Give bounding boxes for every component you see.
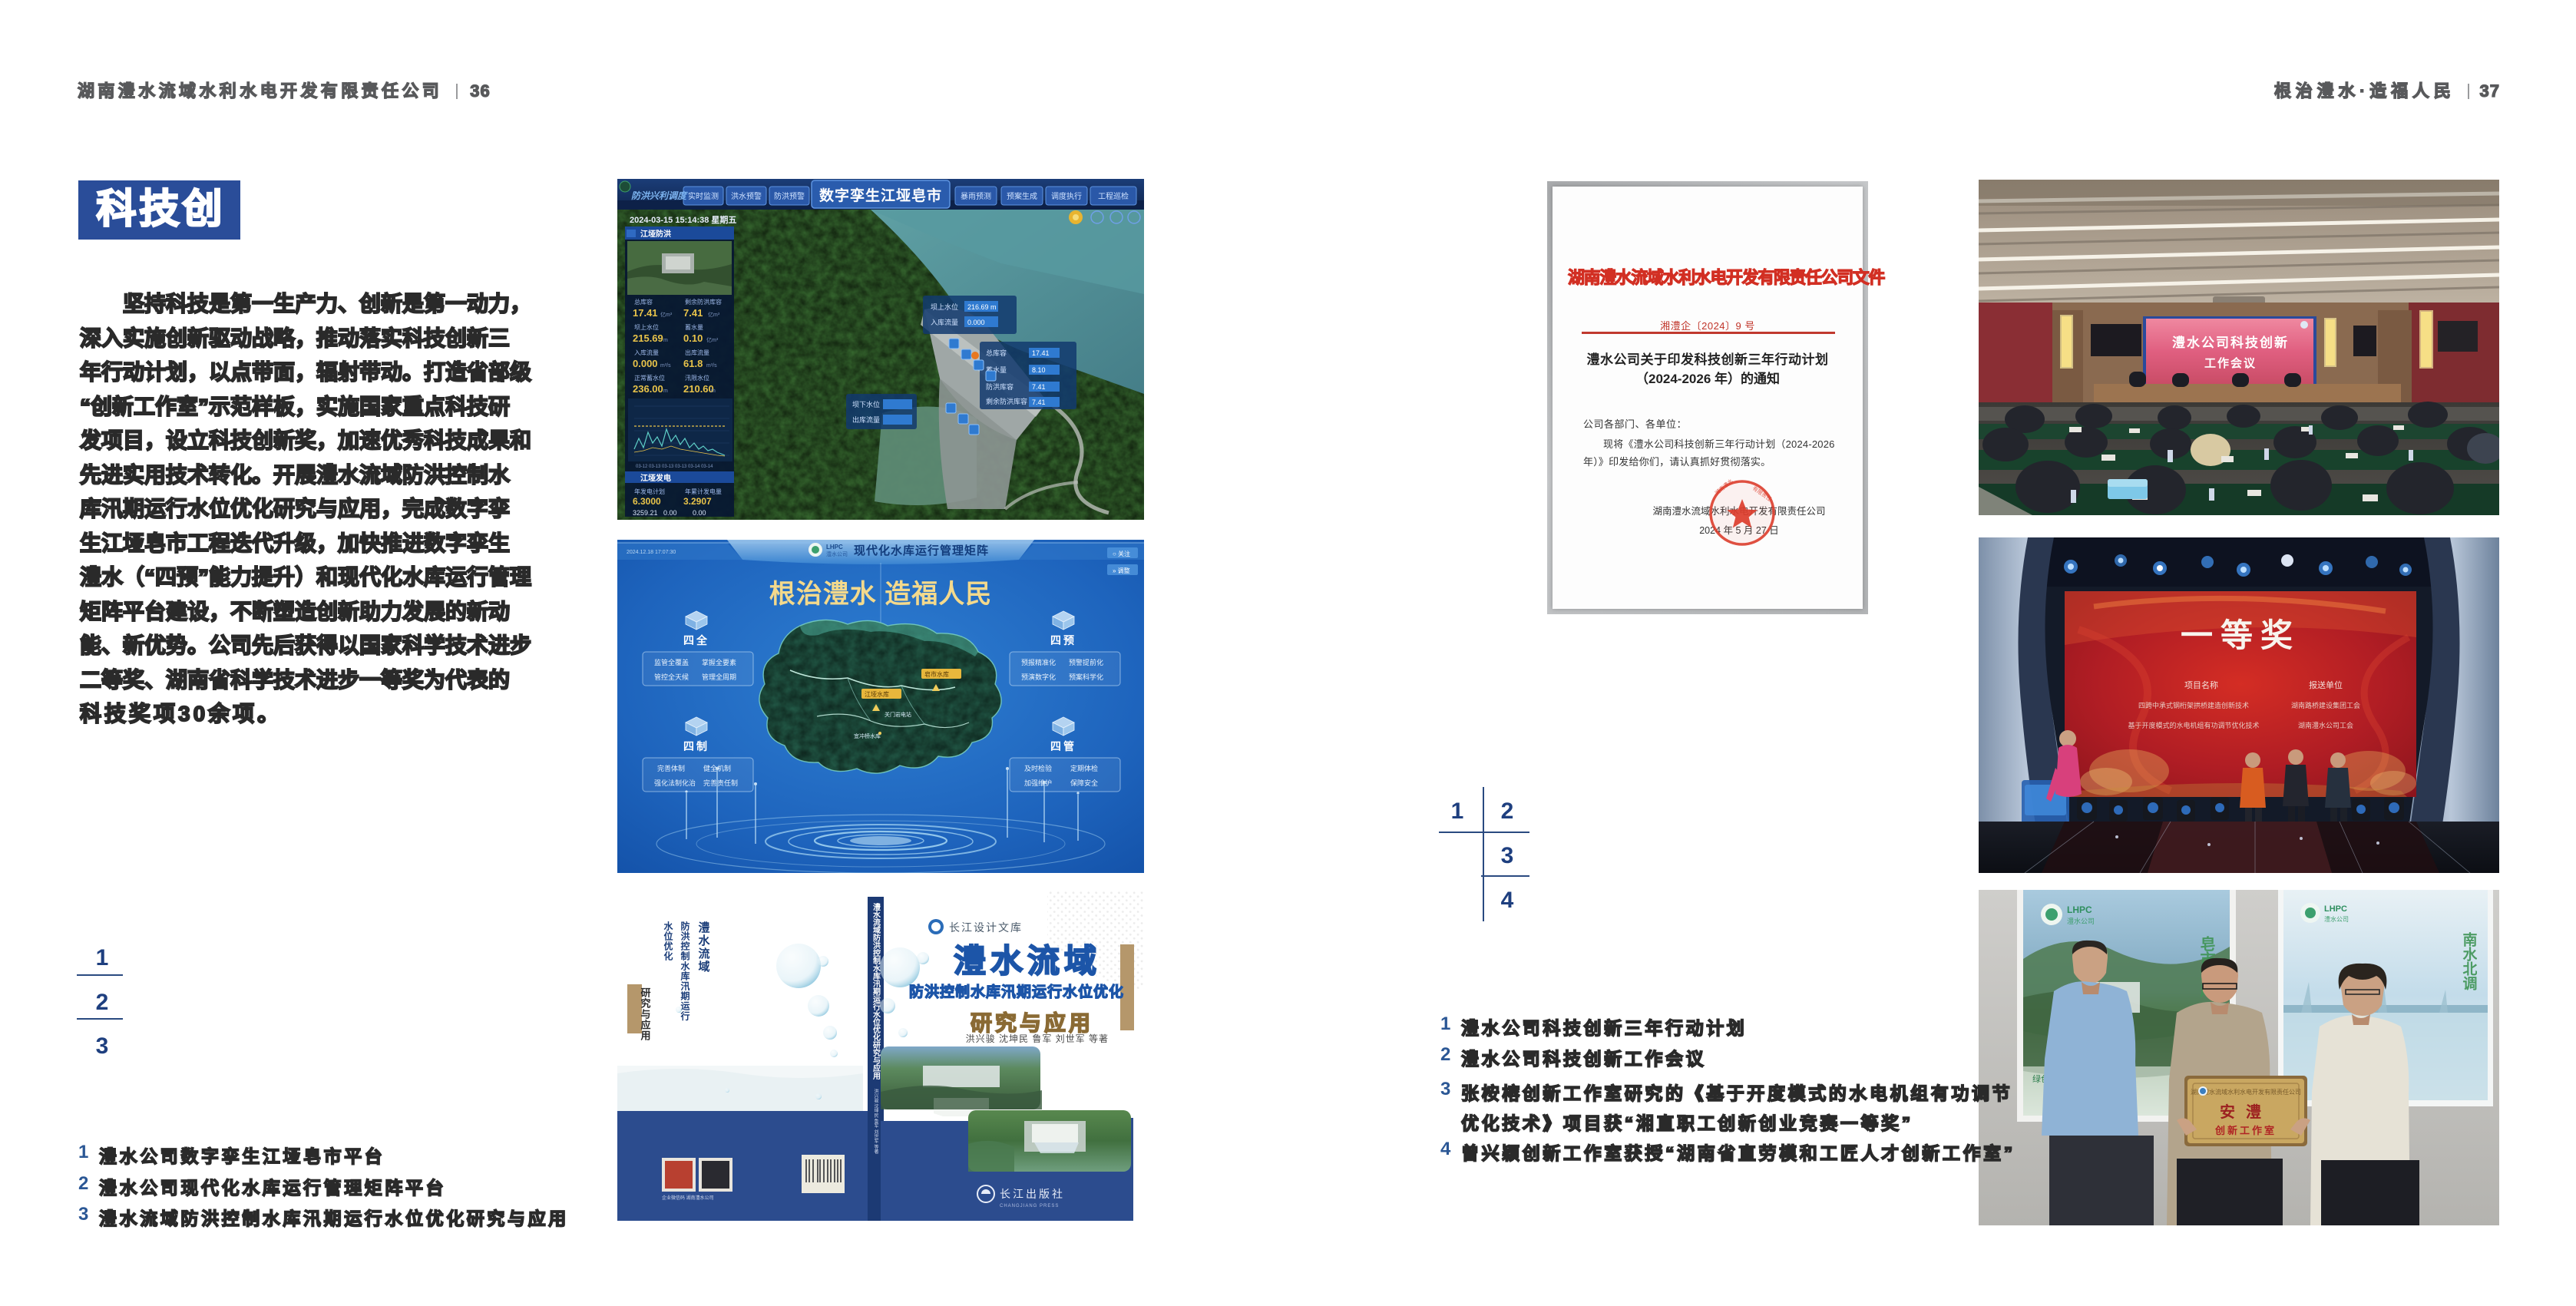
svg-text:管理全周期: 管理全周期 [702, 673, 736, 681]
svg-text:一等奖: 一等奖 [2181, 617, 2300, 653]
svg-text:水位优化: 水位优化 [663, 921, 673, 961]
svg-text:3.2907: 3.2907 [683, 496, 712, 507]
svg-text:澧水公司科技创新: 澧水公司科技创新 [2172, 335, 2289, 350]
svg-text:研究与应用: 研究与应用 [971, 1010, 1093, 1035]
svg-text:长江设计文库: 长江设计文库 [949, 921, 1023, 934]
svg-text:剩余防洪库容: 剩余防洪库容 [986, 397, 1027, 405]
svg-text:企业微信码 湖南澧水公司: 企业微信码 湖南澧水公司 [662, 1195, 714, 1201]
svg-text:0.000: 0.000 [633, 358, 658, 369]
svg-text:防洪控制水库汛期运行: 防洪控制水库汛期运行 [680, 921, 690, 1021]
svg-text:澧水公司: 澧水公司 [826, 551, 848, 557]
svg-text:汛限水位: 汛限水位 [685, 374, 709, 382]
svg-text:3259.21: 3259.21 [633, 509, 658, 517]
svg-text:亿m³: 亿m³ [708, 311, 720, 318]
svg-text:澧水流域: 澧水流域 [697, 921, 710, 974]
svg-text:216.69 m: 216.69 m [967, 303, 997, 311]
svg-text:0.00: 0.00 [663, 509, 677, 517]
svg-text:四预: 四预 [1050, 634, 1076, 646]
svg-text:入库流量: 入库流量 [931, 318, 958, 326]
svg-text:监管全覆盖: 监管全覆盖 [654, 658, 689, 666]
svg-text:0.10: 0.10 [683, 332, 703, 344]
svg-text:四管: 四管 [1050, 740, 1076, 752]
svg-text:LHPC: LHPC [2067, 904, 2092, 915]
svg-text:坝下水位: 坝下水位 [852, 400, 880, 408]
svg-text:工作会议: 工作会议 [2204, 356, 2257, 370]
svg-text:预演数字化: 预演数字化 [1021, 673, 1056, 681]
svg-text:澧水公司: 澧水公司 [2324, 915, 2349, 923]
svg-text:南水北调: 南水北调 [2461, 932, 2478, 990]
svg-text:定期体检: 定期体检 [1070, 764, 1098, 772]
svg-text:236.00: 236.00 [633, 383, 663, 395]
svg-text:四制: 四制 [683, 740, 709, 752]
svg-text:7.41: 7.41 [683, 307, 703, 319]
svg-text:皂市水库: 皂市水库 [924, 670, 949, 678]
svg-text:0.000: 0.000 [967, 319, 985, 326]
svg-text:03-12 03-13 03-13 03-13 03-14: 03-12 03-13 03-13 03-13 03-14 03-14 [636, 465, 713, 469]
svg-text:调度执行: 调度执行 [1051, 191, 1082, 201]
svg-text:剩余防洪库容: 剩余防洪库容 [685, 298, 722, 306]
svg-text:完善体制: 完善体制 [657, 764, 685, 772]
svg-text:暴雨预测: 暴雨预测 [961, 191, 991, 201]
svg-text:关门岩电站: 关门岩电站 [885, 711, 911, 718]
svg-text:总库容: 总库容 [986, 349, 1007, 357]
svg-text:防洪预警: 防洪预警 [774, 191, 805, 201]
svg-text:管控全天候: 管控全天候 [654, 673, 689, 681]
svg-text:四跨中承式钢桁架拱桥建造创新技术: 四跨中承式钢桁架拱桥建造创新技术 [2138, 701, 2249, 709]
svg-text:洪水预警: 洪水预警 [731, 191, 762, 201]
svg-text:及时检验: 及时检验 [1024, 764, 1052, 772]
svg-text:17.41: 17.41 [1032, 349, 1050, 357]
svg-text:洪兴骏 沈坤民 鲁军 刘世军 等著: 洪兴骏 沈坤民 鲁军 刘世军 等著 [873, 1088, 878, 1155]
svg-text:项目名称: 项目名称 [2184, 679, 2218, 690]
svg-text:m: m [711, 388, 716, 394]
svg-text:年发电计划: 年发电计划 [634, 488, 665, 495]
svg-text:0.00: 0.00 [693, 509, 706, 517]
svg-text:澧水公司: 澧水公司 [2067, 917, 2095, 925]
svg-text:强化法制化治: 强化法制化治 [654, 779, 696, 787]
svg-text:LHPC: LHPC [826, 544, 843, 551]
svg-text:2024-03-15 15:14:38 星期五: 2024-03-15 15:14:38 星期五 [630, 214, 736, 225]
svg-text:报送单位: 报送单位 [2309, 679, 2343, 690]
svg-text:出库流量: 出库流量 [852, 415, 880, 424]
svg-text:洪兴骏 沈坤民 鲁军 刘世军 等著: 洪兴骏 沈坤民 鲁军 刘世军 等著 [966, 1033, 1109, 1044]
svg-text:7.41: 7.41 [1032, 398, 1046, 406]
svg-text:8.10: 8.10 [1032, 366, 1046, 374]
svg-text:坝上水位: 坝上水位 [634, 323, 659, 331]
svg-text:61.8: 61.8 [683, 358, 703, 369]
svg-text:澧水流域: 澧水流域 [954, 943, 1101, 979]
svg-text:坝上水位: 坝上水位 [931, 303, 958, 311]
svg-text:出库流量: 出库流量 [685, 349, 709, 356]
svg-text:210.60: 210.60 [683, 383, 714, 395]
svg-text:215.69: 215.69 [633, 332, 663, 344]
svg-text:预报精准化: 预报精准化 [1021, 658, 1056, 666]
svg-text:江垭发电: 江垭发电 [640, 473, 671, 483]
svg-text:年累计发电量: 年累计发电量 [685, 488, 722, 495]
svg-text:完善责任制: 完善责任制 [703, 779, 738, 787]
svg-text:蓄水量: 蓄水量 [685, 323, 703, 331]
svg-text:入库流量: 入库流量 [634, 349, 659, 356]
svg-text:7.41: 7.41 [1032, 383, 1046, 391]
svg-text:防洪兴利调度: 防洪兴利调度 [631, 190, 688, 201]
svg-text:预案生成: 预案生成 [1007, 191, 1037, 201]
svg-text:» 调整: » 调整 [1113, 567, 1130, 574]
svg-text:工程巡检: 工程巡检 [1098, 191, 1129, 201]
svg-text:正常蓄水位: 正常蓄水位 [634, 374, 665, 382]
svg-text:LHPC: LHPC [2324, 904, 2347, 914]
svg-text:湖南路桥建设集团工会: 湖南路桥建设集团工会 [2291, 701, 2360, 709]
svg-text:掌握全要素: 掌握全要素 [702, 658, 736, 666]
svg-text:防洪库容: 防洪库容 [986, 382, 1014, 391]
svg-text:湖南澧水公司工会: 湖南澧水公司工会 [2298, 721, 2353, 729]
svg-text:m: m [663, 388, 668, 394]
svg-text:数字孪生江垭皂市: 数字孪生江垭皂市 [819, 187, 942, 204]
svg-text:CHANGJIANG PRESS: CHANGJIANG PRESS [1000, 1204, 1059, 1208]
svg-text:m³/s: m³/s [660, 363, 671, 369]
svg-text:长江出版社: 长江出版社 [1000, 1188, 1065, 1200]
svg-text:2024.12.18 17:07:30: 2024.12.18 17:07:30 [627, 550, 676, 555]
svg-text:江垭防洪: 江垭防洪 [640, 229, 671, 239]
svg-text:加强维护: 加强维护 [1024, 779, 1052, 787]
svg-text:○ 关注: ○ 关注 [1113, 550, 1130, 557]
svg-text:m: m [663, 338, 668, 343]
svg-text:宜冲桥水库: 宜冲桥水库 [854, 732, 881, 739]
svg-text:6.3000: 6.3000 [633, 496, 661, 507]
svg-text:实时监测: 实时监测 [688, 191, 719, 201]
svg-text:四全: 四全 [683, 634, 709, 646]
svg-text:防洪控制水库汛期运行水位优化: 防洪控制水库汛期运行水位优化 [909, 983, 1124, 1000]
svg-text:亿m³: 亿m³ [660, 311, 673, 318]
svg-text:m³/s: m³/s [706, 363, 717, 369]
svg-text:保障安全: 保障安全 [1070, 779, 1098, 787]
svg-text:江垭水库: 江垭水库 [865, 690, 889, 698]
svg-text:总库容: 总库容 [634, 298, 653, 306]
svg-text:基于开度模式的水电机组有功调节优化技术: 基于开度模式的水电机组有功调节优化技术 [2128, 721, 2259, 729]
svg-text:17.41: 17.41 [633, 307, 658, 319]
svg-text:亿m³: 亿m³ [706, 336, 719, 343]
svg-text:现代化水库运行管理矩阵: 现代化水库运行管理矩阵 [854, 544, 989, 557]
svg-text:预警提前化: 预警提前化 [1069, 658, 1103, 666]
svg-text:安澧: 安澧 [2220, 1103, 2272, 1121]
svg-text:预案科学化: 预案科学化 [1069, 673, 1103, 681]
svg-text:创新工作室: 创新工作室 [2214, 1125, 2277, 1136]
svg-text:研究与应用: 研究与应用 [640, 987, 652, 1041]
